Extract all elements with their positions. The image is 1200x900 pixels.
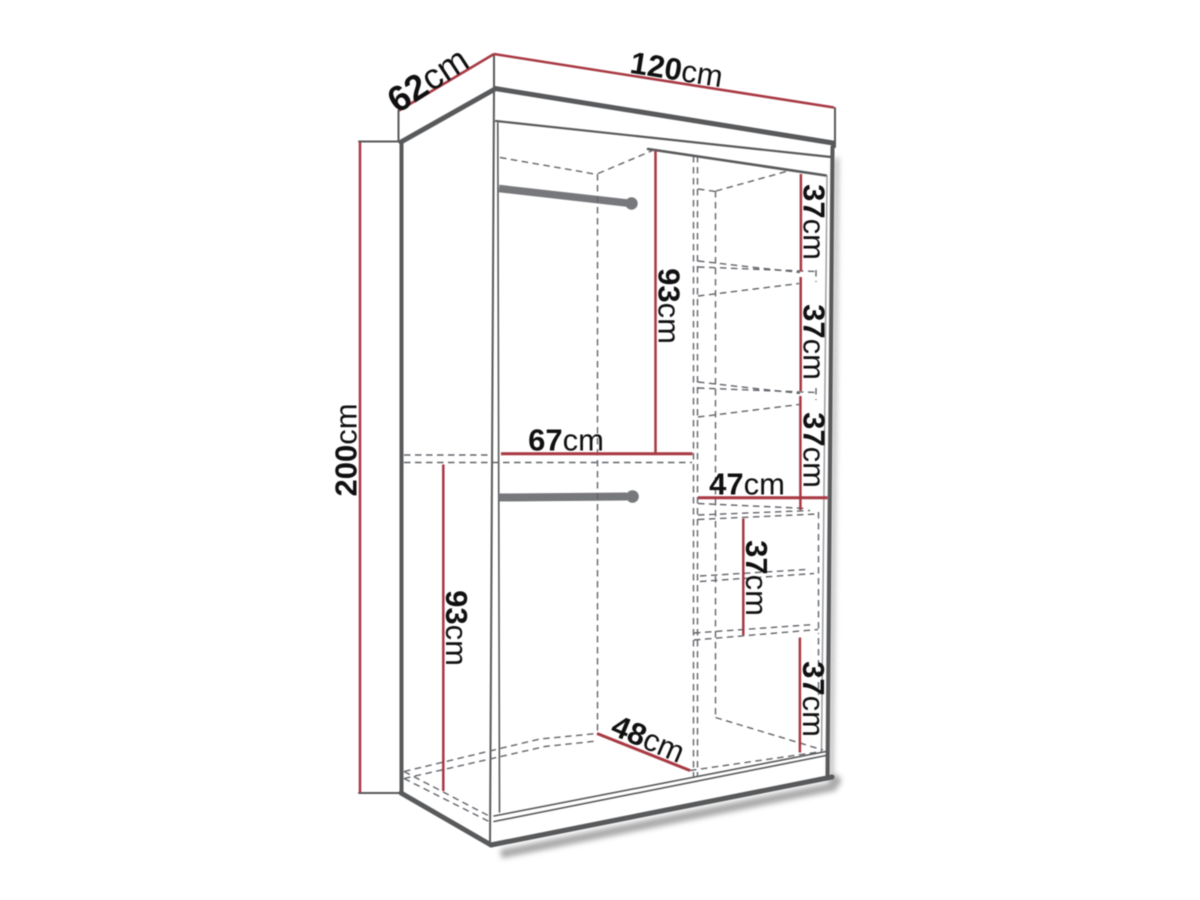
svg-text:47cm: 47cm — [709, 466, 785, 501]
svg-text:200cm: 200cm — [329, 403, 364, 496]
svg-text:67cm: 67cm — [528, 423, 604, 458]
svg-text:37cm: 37cm — [797, 184, 832, 260]
svg-text:37cm: 37cm — [797, 304, 832, 380]
svg-text:93cm: 93cm — [652, 268, 687, 344]
svg-text:37cm: 37cm — [797, 412, 832, 488]
svg-text:93cm: 93cm — [439, 590, 474, 666]
svg-text:37cm: 37cm — [796, 661, 831, 737]
svg-text:37cm: 37cm — [739, 540, 774, 616]
